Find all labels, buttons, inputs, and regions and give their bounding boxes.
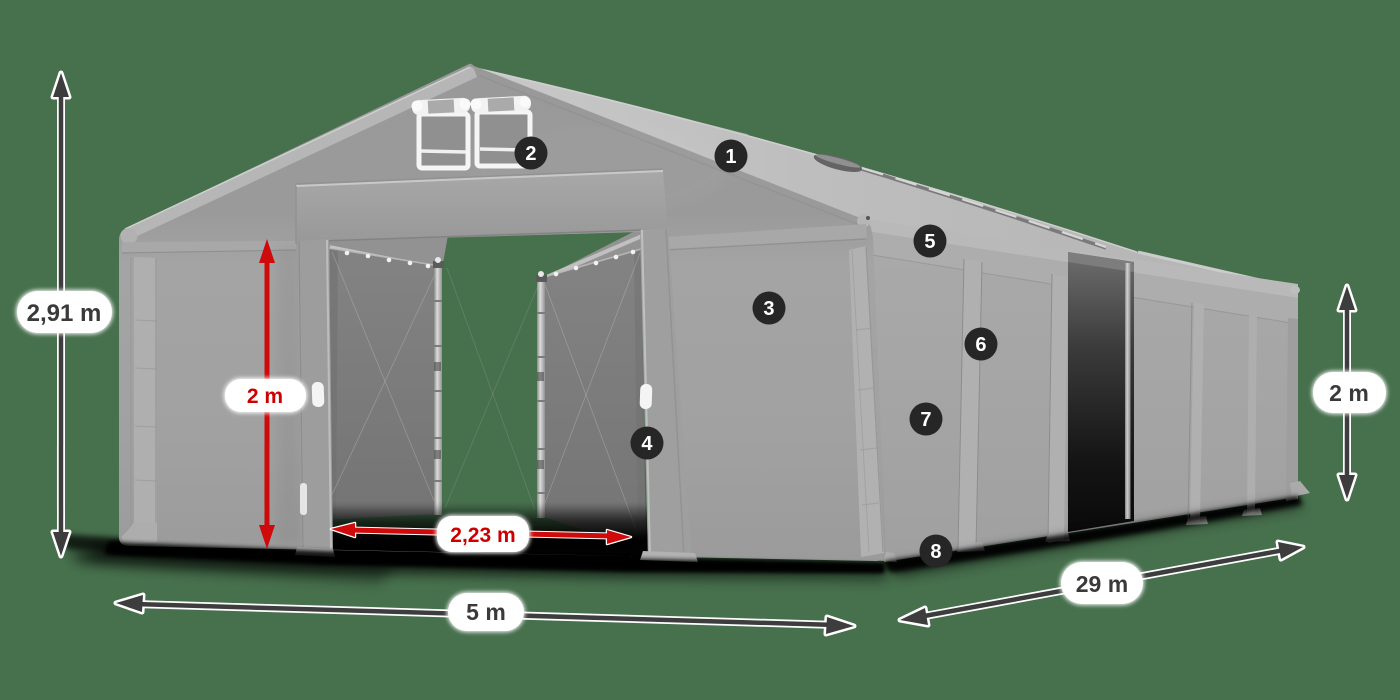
svg-text:8: 8 <box>930 541 941 563</box>
svg-text:29 m: 29 m <box>1076 571 1128 597</box>
svg-text:3: 3 <box>763 298 774 320</box>
svg-text:2,91 m: 2,91 m <box>27 300 102 327</box>
svg-text:7: 7 <box>920 409 931 431</box>
svg-text:6: 6 <box>975 334 986 356</box>
svg-text:2,23 m: 2,23 m <box>450 524 515 547</box>
svg-text:4: 4 <box>641 433 653 455</box>
svg-text:1: 1 <box>725 146 736 168</box>
svg-text:2 m: 2 m <box>1329 380 1369 406</box>
svg-text:5 m: 5 m <box>466 599 506 625</box>
svg-text:5: 5 <box>924 231 935 253</box>
svg-text:2: 2 <box>525 143 536 165</box>
svg-text:2 m: 2 m <box>247 385 283 408</box>
